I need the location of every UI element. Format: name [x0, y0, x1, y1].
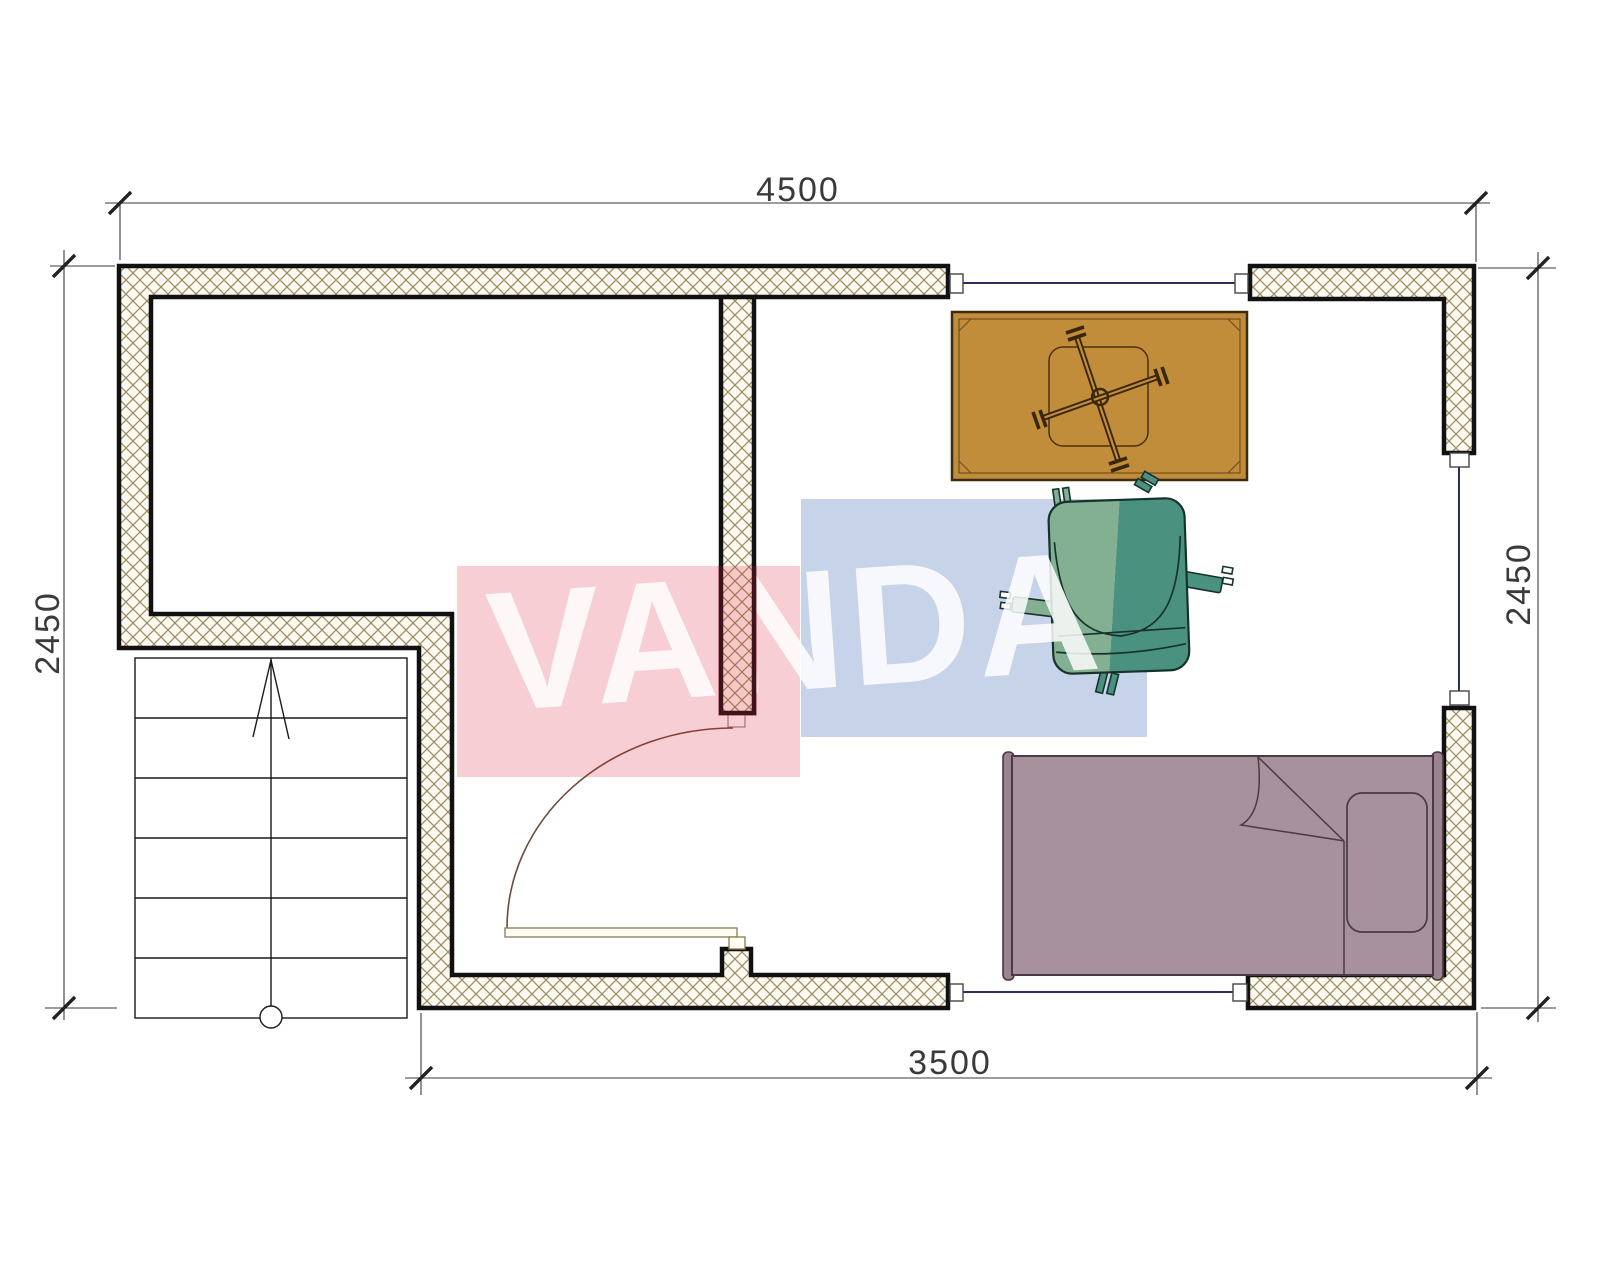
- floor-plan-canvas: 4500 2450 2450: [0, 0, 1600, 1280]
- partition-layer: [0, 0, 1600, 1280]
- partition-red-tint: [718, 566, 757, 716]
